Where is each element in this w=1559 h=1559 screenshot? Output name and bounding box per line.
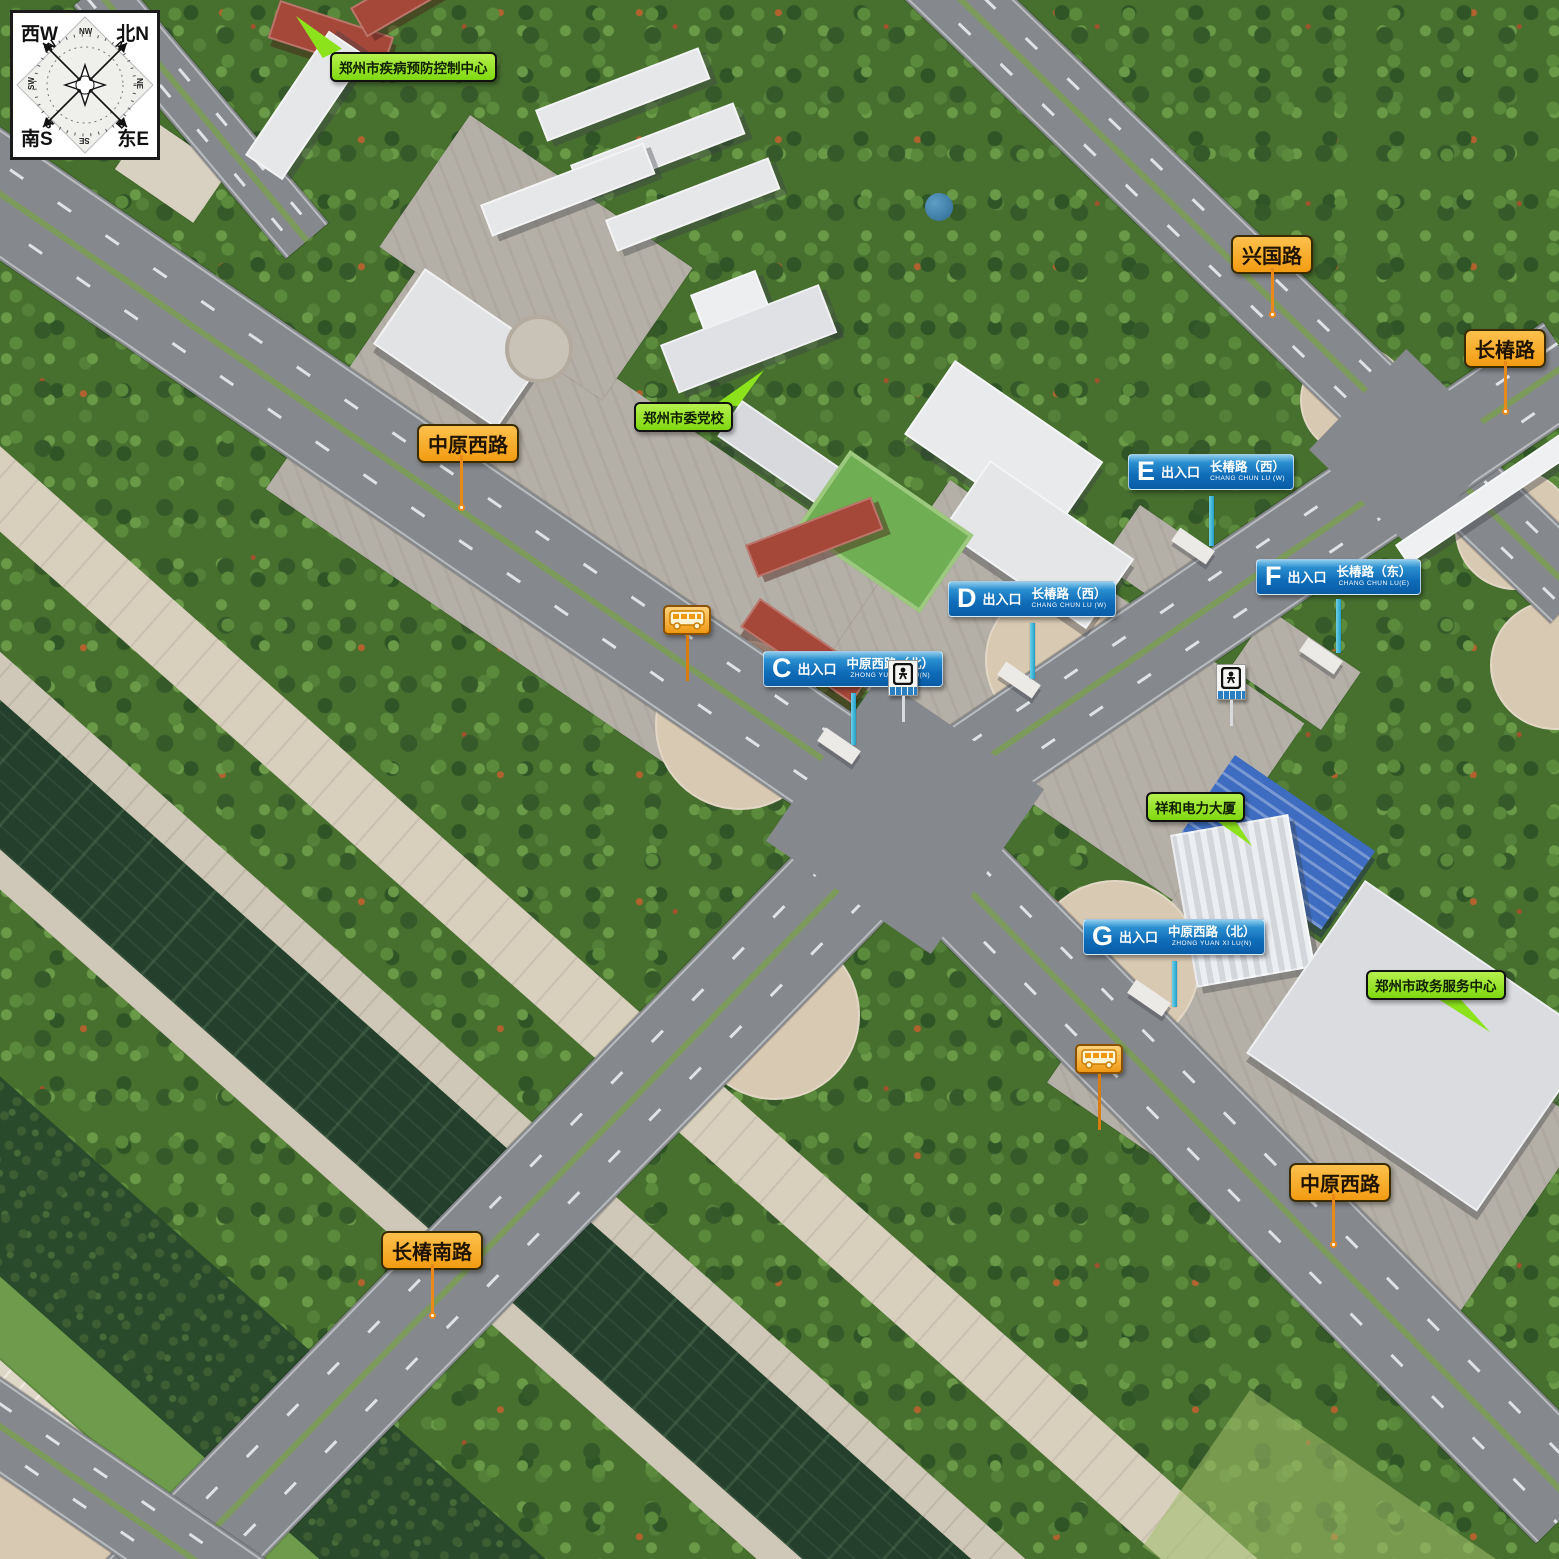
road-label-zhongyuanxilu-east[interactable]: 中原西路	[1289, 1163, 1377, 1202]
label-stem	[1332, 1194, 1335, 1242]
place-label-text: 祥和电力大厦	[1146, 792, 1245, 822]
entrance-suffix: 出入口	[983, 589, 1022, 608]
aerial-map: 西W 北N 南S 东E W N S E NW NE SE SW 郑州市疾病预防控…	[0, 0, 1559, 1559]
place-label-text: 郑州市疾病预防控制中心	[330, 52, 497, 82]
water-tower	[925, 193, 953, 221]
compass-ring-nw: NW	[79, 27, 92, 36]
entrance-letter: E	[1137, 458, 1155, 485]
road-label-text: 中原西路	[1289, 1163, 1391, 1202]
entrance-panel: G 出入口 中原西路（北） ZHONG YUAN XI LU(N)	[1083, 919, 1265, 955]
entrance-suffix: 出入口	[1119, 927, 1158, 946]
place-label-xianghe[interactable]: 祥和电力大厦	[1146, 792, 1245, 822]
entrance-panel: E 出入口 长椿路（西） CHANG CHUN LU (W)	[1128, 454, 1294, 490]
sign-pole	[851, 693, 856, 745]
compass-ring-se: SE	[79, 136, 90, 145]
entrance-sign-f[interactable]: F 出入口 长椿路（东） CHANG CHUN LU(E)	[1256, 559, 1421, 595]
entrance-sign-d[interactable]: D 出入口 长椿路（西） CHANG CHUN LU (W)	[948, 581, 1116, 617]
compass-ring-ne: NE	[135, 78, 144, 89]
sign-pole	[1030, 623, 1035, 679]
bus-icon	[1075, 1044, 1123, 1074]
entrance-letter: G	[1092, 923, 1113, 950]
label-stem	[1271, 268, 1274, 312]
entrance-sign-g[interactable]: G 出入口 中原西路（北） ZHONG YUAN XI LU(N)	[1083, 919, 1265, 955]
pedestrian-sign-2[interactable]	[1216, 664, 1246, 700]
entrance-road-cn: 长椿路（西）	[1210, 460, 1285, 475]
place-label-party-school[interactable]: 郑州市委党校	[634, 402, 733, 432]
place-label-text: 郑州市委党校	[634, 402, 733, 432]
label-anchor-dot	[1502, 408, 1509, 415]
bus-stop-2[interactable]	[1075, 1044, 1123, 1079]
label-anchor-dot	[458, 504, 465, 511]
road-label-text: 中原西路	[417, 424, 519, 463]
label-stem	[460, 455, 463, 505]
entrance-suffix: 出入口	[1161, 462, 1200, 481]
entrance-suffix: 出入口	[798, 659, 837, 678]
round-plaza	[505, 315, 573, 383]
entrance-panel: D 出入口 长椿路（西） CHANG CHUN LU (W)	[948, 581, 1116, 617]
sign-caption-band	[889, 687, 917, 695]
label-stem	[1504, 361, 1507, 409]
road-label-changchunnanlu[interactable]: 长椿南路	[376, 1231, 488, 1270]
entrance-suffix: 出入口	[1288, 567, 1327, 586]
entrance-road-en: ZHONG YUAN XI LU(N)	[1172, 940, 1252, 948]
pedestrian-crossing-icon	[888, 660, 918, 696]
entrance-road-cn: 长椿路（东）	[1337, 565, 1412, 580]
pedestrian-sign-1[interactable]	[888, 660, 918, 696]
place-label-cdc[interactable]: 郑州市疾病预防控制中心	[330, 52, 497, 82]
place-label-gov-center[interactable]: 郑州市政务服务中心	[1366, 970, 1506, 1000]
sign-pole	[1230, 700, 1233, 726]
entrance-road-en: CHANG CHUN LU (W)	[1210, 475, 1285, 483]
entrance-road-cn: 长椿路（西）	[1032, 587, 1107, 602]
sign-pole	[1209, 496, 1214, 546]
entrance-sign-e[interactable]: E 出入口 长椿路（西） CHANG CHUN LU (W)	[1128, 454, 1294, 490]
entrance-road-cn: 中原西路（北）	[1168, 925, 1256, 940]
sign-pole	[1336, 599, 1341, 653]
bus-icon	[663, 605, 711, 635]
label-anchor-dot	[429, 1312, 436, 1319]
label-anchor-dot	[1330, 1241, 1337, 1248]
compass: 西W 北N 南S 东E W N S E NW NE SE SW	[10, 10, 160, 160]
entrance-letter: C	[772, 655, 792, 682]
sign-pole	[902, 696, 905, 722]
label-stem	[431, 1264, 434, 1313]
place-label-text: 郑州市政务服务中心	[1366, 970, 1506, 1000]
road-label-zhongyuanxilu-west[interactable]: 中原西路	[417, 424, 505, 463]
sign-pole	[1098, 1074, 1101, 1130]
sign-pole	[686, 635, 689, 681]
entrance-panel: F 出入口 长椿路（东） CHANG CHUN LU(E)	[1256, 559, 1421, 595]
pedestrian-crossing-icon	[1216, 664, 1246, 700]
entrance-road-en: CHANG CHUN LU (W)	[1032, 602, 1107, 610]
sign-caption-band	[1217, 691, 1245, 699]
bus-stop-1[interactable]	[663, 605, 711, 640]
entrance-letter: F	[1265, 563, 1282, 590]
entrance-road-en: CHANG CHUN LU(E)	[1339, 580, 1410, 588]
label-anchor-dot	[1269, 311, 1276, 318]
sign-pole	[1172, 961, 1177, 1007]
road-label-xingguolu[interactable]: 兴国路	[1231, 235, 1313, 274]
road-label-changchunlu[interactable]: 长椿路	[1464, 329, 1546, 368]
compass-ring-sw: SW	[27, 77, 36, 90]
entrance-letter: D	[957, 585, 977, 612]
building-cdc-block	[350, 0, 445, 37]
